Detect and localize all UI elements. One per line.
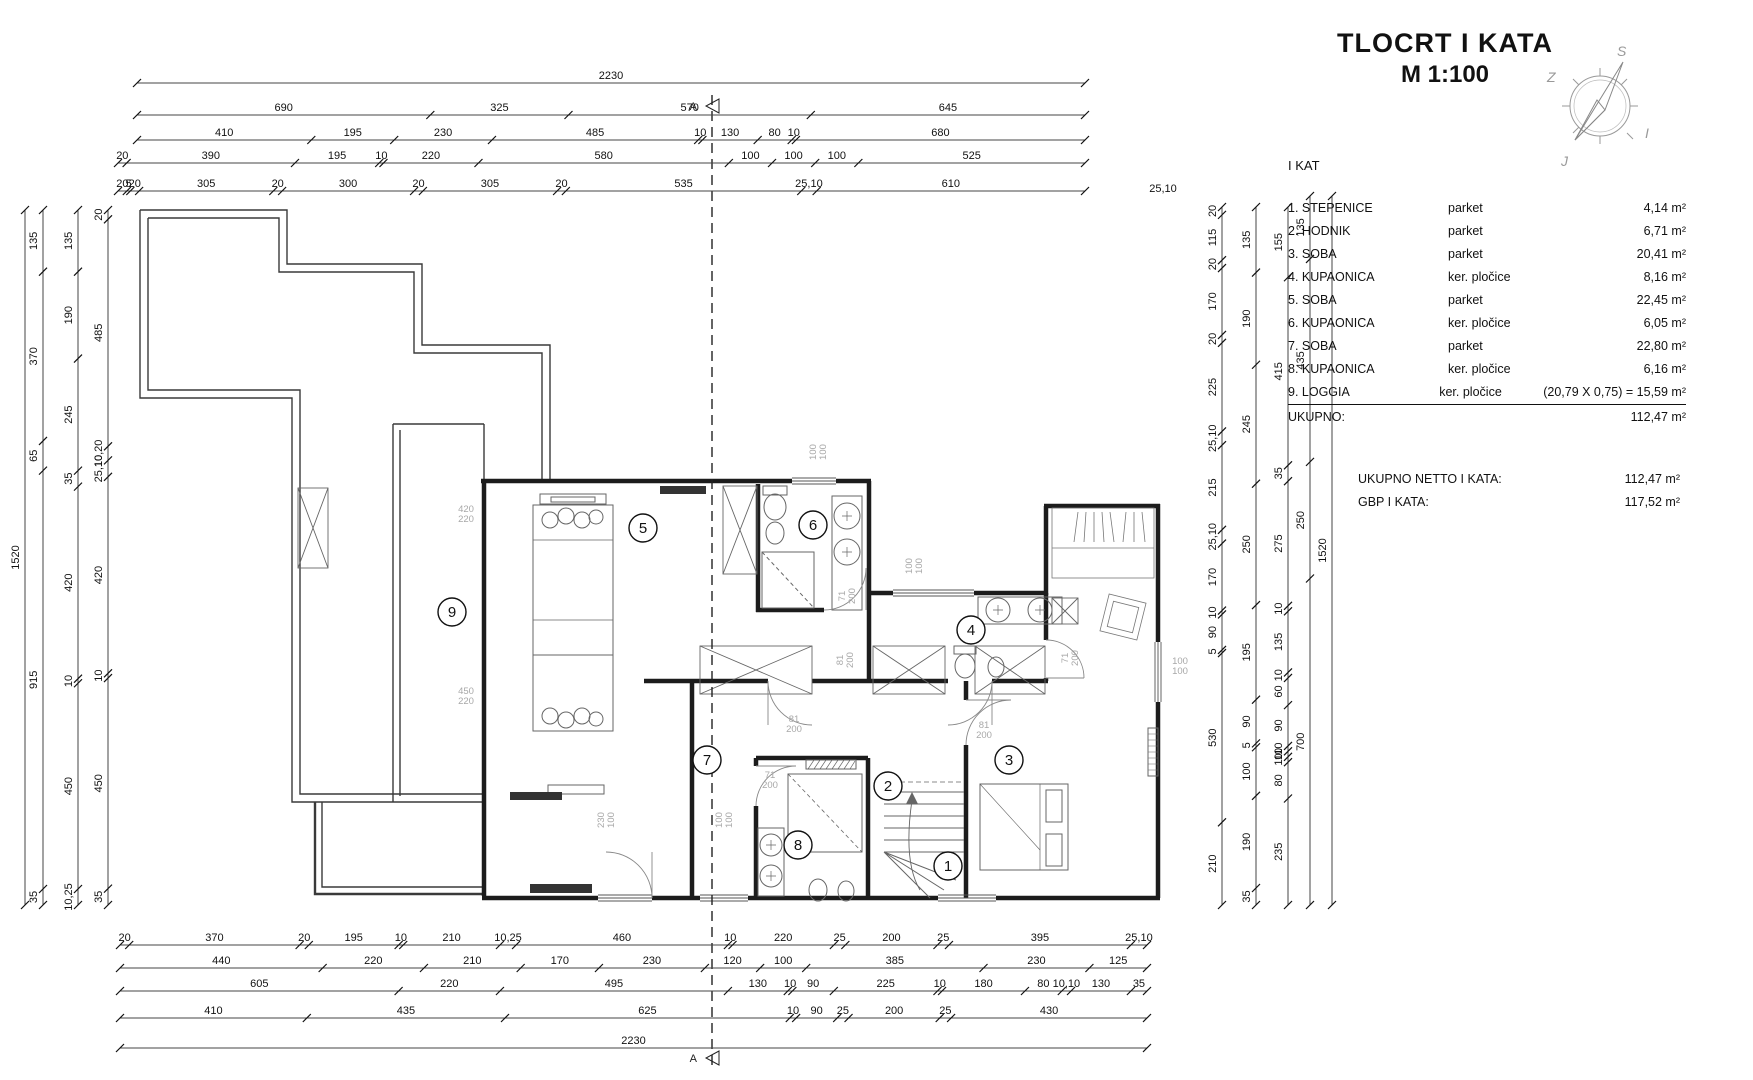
dim-label: 370 <box>205 932 223 944</box>
closet-hangers <box>1052 508 1154 640</box>
section-letter-bottom: A <box>690 1053 698 1065</box>
legend-room-name: 3. SOBA <box>1288 243 1448 266</box>
dim-label: 100 <box>828 150 846 162</box>
interior-dim-label: 100100 <box>808 444 829 460</box>
dim-label: 230 <box>643 955 661 967</box>
legend-room-area: 6,16 m² <box>1558 358 1686 381</box>
legend-row: 5. SOBAparket22,45 m² <box>1288 289 1686 312</box>
legend-room-name: 2. HODNIK <box>1288 220 1448 243</box>
legend-room-name: 1. STEPENICE <box>1288 197 1448 220</box>
legend-room-finish: parket <box>1448 289 1558 312</box>
dim-label: 20 <box>1207 258 1219 270</box>
dim-label: 170 <box>1207 292 1219 310</box>
dim-label: 210 <box>442 932 460 944</box>
dim-label: 90 <box>807 978 819 990</box>
dim-label: 250 <box>1241 535 1253 553</box>
room-number-label: 2 <box>884 778 892 795</box>
dim-label: 535 <box>674 178 692 190</box>
legend-room-name: 6. KUPAONICA <box>1288 312 1448 335</box>
legend-row: 1. STEPENICEparket4,14 m² <box>1288 197 1686 220</box>
dim-label: 1520 <box>10 545 22 569</box>
dim-label: 625 <box>638 1005 656 1017</box>
dim-label: 200 <box>882 932 900 944</box>
dim-label: 190 <box>63 306 75 324</box>
dim-label: 525 <box>963 150 981 162</box>
legend-room-finish: parket <box>1448 197 1558 220</box>
dim-label: 115 <box>1207 229 1219 247</box>
dim-label: 485 <box>93 324 105 342</box>
legend-row: 2. HODNIKparket6,71 m² <box>1288 220 1686 243</box>
dim-label: 235 <box>1273 843 1285 861</box>
legend-row: 3. SOBAparket20,41 m² <box>1288 243 1686 266</box>
room-number-label: 3 <box>1005 752 1013 769</box>
dim-label: 130 <box>749 978 767 990</box>
room-number-4: 4 <box>957 616 985 644</box>
svg-text:220: 220 <box>458 514 474 525</box>
legend-row: 6. KUPAONICAker. pločice6,05 m² <box>1288 312 1686 335</box>
dim-label: 190 <box>1241 309 1253 327</box>
dim-label: 20 <box>93 209 105 221</box>
gbp-value: 117,52 m² <box>1625 491 1680 514</box>
dim-label: 530 <box>1207 729 1219 747</box>
dim-label: 420 <box>93 566 105 584</box>
dim-label: 435 <box>397 1005 415 1017</box>
interior-dim-label: 230100 <box>596 812 617 828</box>
dim-label: 25,10 <box>93 455 105 483</box>
dim-label: 5 <box>1207 648 1219 654</box>
dim-label: 395 <box>1031 932 1049 944</box>
legend-room-finish: parket <box>1448 243 1558 266</box>
dim-label: 225 <box>876 978 894 990</box>
summary-block: UKUPNO NETTO I KATA: 112,47 m² GBP I KAT… <box>1358 468 1680 514</box>
room-legend: I KAT 1. STEPENICEparket4,14 m²2. HODNIK… <box>1288 158 1686 429</box>
terrace-outline <box>140 210 550 894</box>
dim-label: 220 <box>364 955 382 967</box>
room-number-5: 5 <box>629 514 657 542</box>
dim-label: 10 <box>1273 669 1285 681</box>
dim-label: 300 <box>339 178 357 190</box>
gbp-row: GBP I KATA: 117,52 m² <box>1358 491 1680 514</box>
interior-dim-label: 420220 <box>458 504 474 525</box>
interior-dim-label: 100100 <box>1172 656 1188 677</box>
dim-label: 90 <box>1273 719 1285 731</box>
interior-dim-label: 71200 <box>762 770 778 791</box>
door-arcs <box>606 568 1084 898</box>
dim-label: 170 <box>551 955 569 967</box>
dim-label: 415 <box>1273 362 1285 380</box>
legend-room-name: 4. KUPAONICA <box>1288 266 1448 289</box>
dim-label: 20 <box>412 178 424 190</box>
dim-label: 125 <box>1109 955 1127 967</box>
dim-label: 5 <box>1241 742 1253 748</box>
dim-label: 245 <box>63 405 75 423</box>
room-number-label: 6 <box>809 517 817 534</box>
dim-label: 20 <box>118 932 130 944</box>
dim-label: 2230 <box>599 70 623 82</box>
legend-room-area: 20,41 m² <box>1558 243 1686 266</box>
dim-label: 190 <box>1241 833 1253 851</box>
dim-label: 450 <box>63 777 75 795</box>
dim-label: 25,10 <box>1125 932 1153 944</box>
room-number-label: 5 <box>639 520 647 537</box>
svg-text:200: 200 <box>847 588 858 604</box>
dim-label: 135 <box>1241 231 1253 249</box>
dim-label: 20 <box>555 178 567 190</box>
dim-label: 220 <box>774 932 792 944</box>
dim-label: 10 <box>1273 753 1285 765</box>
legend-heading: I KAT <box>1288 158 1686 173</box>
dim-label: 220 <box>422 150 440 162</box>
interior-dim-label: 71200 <box>837 588 858 604</box>
dim-label: 430 <box>1040 1005 1058 1017</box>
dim-label: 10,25 <box>494 932 522 944</box>
legend-room-name: 7. SOBA <box>1288 335 1448 358</box>
dim-label: 130 <box>721 127 739 139</box>
dim-label: 25,10 <box>1149 183 1177 195</box>
dim-label: 135 <box>1273 633 1285 651</box>
legend-room-finish: ker. pločice <box>1448 266 1558 289</box>
dim-label: 20 <box>272 178 284 190</box>
dim-label: 100 <box>774 955 792 967</box>
dim-label: 460 <box>613 932 631 944</box>
dim-label: 25 <box>939 1005 951 1017</box>
interior-dim-label: 81200 <box>835 652 856 668</box>
dim-label: 700 <box>1295 733 1307 751</box>
dim-label: 100 <box>784 150 802 162</box>
plan-walls <box>481 481 1160 898</box>
dim-label: 90 <box>1241 715 1253 727</box>
dim-label: 10 <box>93 670 105 682</box>
svg-text:200: 200 <box>786 724 802 735</box>
interior-dim-label: 450220 <box>458 686 474 707</box>
legend-room-finish: ker. pločice <box>1448 358 1558 381</box>
dim-label: 250 <box>1295 511 1307 529</box>
dim-label: 195 <box>345 932 363 944</box>
svg-text:100: 100 <box>724 812 735 828</box>
compass-e-label: I <box>1645 125 1649 141</box>
dim-label: 100 <box>741 150 759 162</box>
svg-text:100: 100 <box>1172 666 1188 677</box>
gbp-label: GBP I KATA: <box>1358 491 1625 514</box>
svg-text:200: 200 <box>976 730 992 741</box>
dim-label: 450 <box>93 774 105 792</box>
legend-total-label: UKUPNO: <box>1288 406 1558 429</box>
dim-label: 35 <box>28 891 40 903</box>
legend-room-area: 22,80 m² <box>1558 335 1686 358</box>
dim-label: 10 <box>787 1005 799 1017</box>
dim-label: 35 <box>63 473 75 485</box>
legend-rows: 1. STEPENICEparket4,14 m²2. HODNIKparket… <box>1288 197 1686 405</box>
svg-text:200: 200 <box>1070 650 1081 666</box>
room-number-3: 3 <box>995 746 1023 774</box>
dim-label: 10 <box>63 675 75 687</box>
dim-label: 25 <box>937 932 949 944</box>
room-number-label: 8 <box>794 837 802 854</box>
dim-label: 80 <box>1037 978 1049 990</box>
dim-label: 195 <box>1241 643 1253 661</box>
bed-room5 <box>533 494 613 794</box>
dim-label: 20 <box>129 178 141 190</box>
interior-dim-label: 100100 <box>714 812 735 828</box>
legend-room-area: (20,79 X 0,75) = 15,59 m² <box>1543 381 1686 404</box>
dim-label: 35 <box>93 891 105 903</box>
dim-label: 10,10 <box>1053 978 1081 990</box>
title-block: TLOCRT I KATA M 1:100 <box>1230 28 1660 89</box>
dim-label: 10,25 <box>63 883 75 911</box>
dim-label: 245 <box>1241 415 1253 433</box>
sheet-scale: M 1:100 <box>1230 61 1660 89</box>
room-number-label: 7 <box>703 752 711 769</box>
dim-label: 385 <box>886 955 904 967</box>
interior-dim-label: 71200 <box>1060 650 1081 666</box>
dim-label: 410 <box>215 127 233 139</box>
legend-row: 9. LOGGIAker. pločice(20,79 X 0,75) = 15… <box>1288 381 1686 405</box>
legend-room-name: 5. SOBA <box>1288 289 1448 312</box>
dim-label: 225 <box>1207 378 1219 396</box>
room-number-2: 2 <box>874 772 902 800</box>
legend-room-name: 9. LOGGIA <box>1288 381 1439 404</box>
dim-label: 100 <box>1241 762 1253 780</box>
svg-text:100: 100 <box>606 812 617 828</box>
legend-row: 4. KUPAONICAker. pločice8,16 m² <box>1288 266 1686 289</box>
legend-room-area: 6,05 m² <box>1558 312 1686 335</box>
dim-label: 580 <box>594 150 612 162</box>
dim-label: 65 <box>28 450 40 462</box>
dim-label: 370 <box>28 347 40 365</box>
stairs <box>884 782 964 898</box>
dim-label: 35 <box>1273 467 1285 479</box>
interior-dim-label: 81200 <box>976 720 992 741</box>
dim-label: 410 <box>204 1005 222 1017</box>
interior-dim-label: 81200 <box>786 714 802 735</box>
dim-label: 20 <box>1207 205 1219 217</box>
legend-room-area: 22,45 m² <box>1558 289 1686 312</box>
dim-label: 90 <box>1207 626 1219 638</box>
dim-label: 25,10 <box>1207 523 1219 551</box>
legend-row: 8. KUPAONICAker. pločice6,16 m² <box>1288 358 1686 381</box>
dim-label: 230 <box>434 127 452 139</box>
dim-label: 130 <box>1092 978 1110 990</box>
section-line: A A <box>690 95 719 1065</box>
dim-label: 605 <box>250 978 268 990</box>
dim-label: 120 <box>723 955 741 967</box>
dim-label: 645 <box>939 102 957 114</box>
legend-room-area: 8,16 m² <box>1558 266 1686 289</box>
dim-label: 60 <box>1273 685 1285 697</box>
dim-label: 25 <box>833 932 845 944</box>
interior-dim-label: 100100 <box>904 558 925 574</box>
dim-label: 90 <box>811 1005 823 1017</box>
dim-label: 20 <box>116 150 128 162</box>
room-number-label: 1 <box>944 858 952 875</box>
dim-label: 25 <box>837 1005 849 1017</box>
dim-label: 325 <box>490 102 508 114</box>
dim-label: 420 <box>63 573 75 591</box>
dim-label: 35 <box>1133 978 1145 990</box>
dim-label: 10 <box>1273 602 1285 614</box>
dim-label: 35 <box>1241 890 1253 902</box>
room-number-label: 4 <box>967 622 975 639</box>
svg-text:100: 100 <box>914 558 925 574</box>
svg-text:200: 200 <box>762 780 778 791</box>
radiators <box>510 486 706 893</box>
svg-text:220: 220 <box>458 696 474 707</box>
legend-room-name: 8. KUPAONICA <box>1288 358 1448 381</box>
dim-label: 200 <box>885 1005 903 1017</box>
dim-label: 25,10 <box>795 178 823 190</box>
dim-label: 305 <box>481 178 499 190</box>
dim-label: 390 <box>202 150 220 162</box>
netto-row: UKUPNO NETTO I KATA: 112,47 m² <box>1358 468 1680 491</box>
dim-label: 170 <box>1207 568 1219 586</box>
dim-label: 690 <box>274 102 292 114</box>
legend-total-value: 112,47 m² <box>1558 406 1686 429</box>
dim-label: 195 <box>328 150 346 162</box>
dim-label: 230 <box>1027 955 1045 967</box>
legend-room-finish: parket <box>1448 335 1558 358</box>
dim-label: 135 <box>28 232 40 250</box>
room-number-7: 7 <box>693 746 721 774</box>
dim-label: 195 <box>344 127 362 139</box>
dim-label: 610 <box>942 178 960 190</box>
dim-label: 495 <box>605 978 623 990</box>
dim-label: 135 <box>63 232 75 250</box>
dim-label: 305 <box>197 178 215 190</box>
dim-label: 25,10 <box>1207 425 1219 453</box>
dim-label: 680 <box>931 127 949 139</box>
dim-label: 210 <box>1207 854 1219 872</box>
dim-label: 155 <box>1273 233 1285 251</box>
netto-value: 112,47 m² <box>1625 468 1680 491</box>
dim-label: 20 <box>1207 333 1219 345</box>
dim-label: 80 <box>769 127 781 139</box>
legend-room-finish: parket <box>1448 220 1558 243</box>
legend-row: 7. SOBAparket22,80 m² <box>1288 335 1686 358</box>
legend-room-area: 4,14 m² <box>1558 197 1686 220</box>
room-number-label: 9 <box>448 604 456 621</box>
netto-label: UKUPNO NETTO I KATA: <box>1358 468 1625 491</box>
legend-room-finish: ker. pločice <box>1448 312 1558 335</box>
dim-label: 20 <box>298 932 310 944</box>
sheet-title: TLOCRT I KATA <box>1230 28 1660 59</box>
dim-label: 10 <box>1207 606 1219 618</box>
dim-label: 2230 <box>621 1035 645 1047</box>
legend-room-area: 6,71 m² <box>1558 220 1686 243</box>
dim-label: 485 <box>586 127 604 139</box>
room-number-8: 8 <box>784 831 812 859</box>
dim-label: 210 <box>463 955 481 967</box>
room-number-6: 6 <box>799 511 827 539</box>
svg-text:100: 100 <box>818 444 829 460</box>
legend-total-row: UKUPNO: 112,47 m² <box>1288 406 1686 429</box>
room-number-9: 9 <box>438 598 466 626</box>
dim-label: 440 <box>212 955 230 967</box>
room-number-1: 1 <box>934 852 962 880</box>
dim-label: 80 <box>1273 774 1285 786</box>
svg-text:200: 200 <box>845 652 856 668</box>
dim-label: 180 <box>974 978 992 990</box>
dim-label: 215 <box>1207 478 1219 496</box>
floor-plan-sheet: A A 223069032557064541019523048510130801… <box>0 0 1753 1080</box>
dim-label: 1520 <box>1317 538 1329 562</box>
dim-label: 220 <box>440 978 458 990</box>
dim-label: 915 <box>28 671 40 689</box>
legend-room-finish: ker. pločice <box>1439 381 1543 404</box>
dim-label: 275 <box>1273 534 1285 552</box>
dim-label: 570 <box>680 102 698 114</box>
